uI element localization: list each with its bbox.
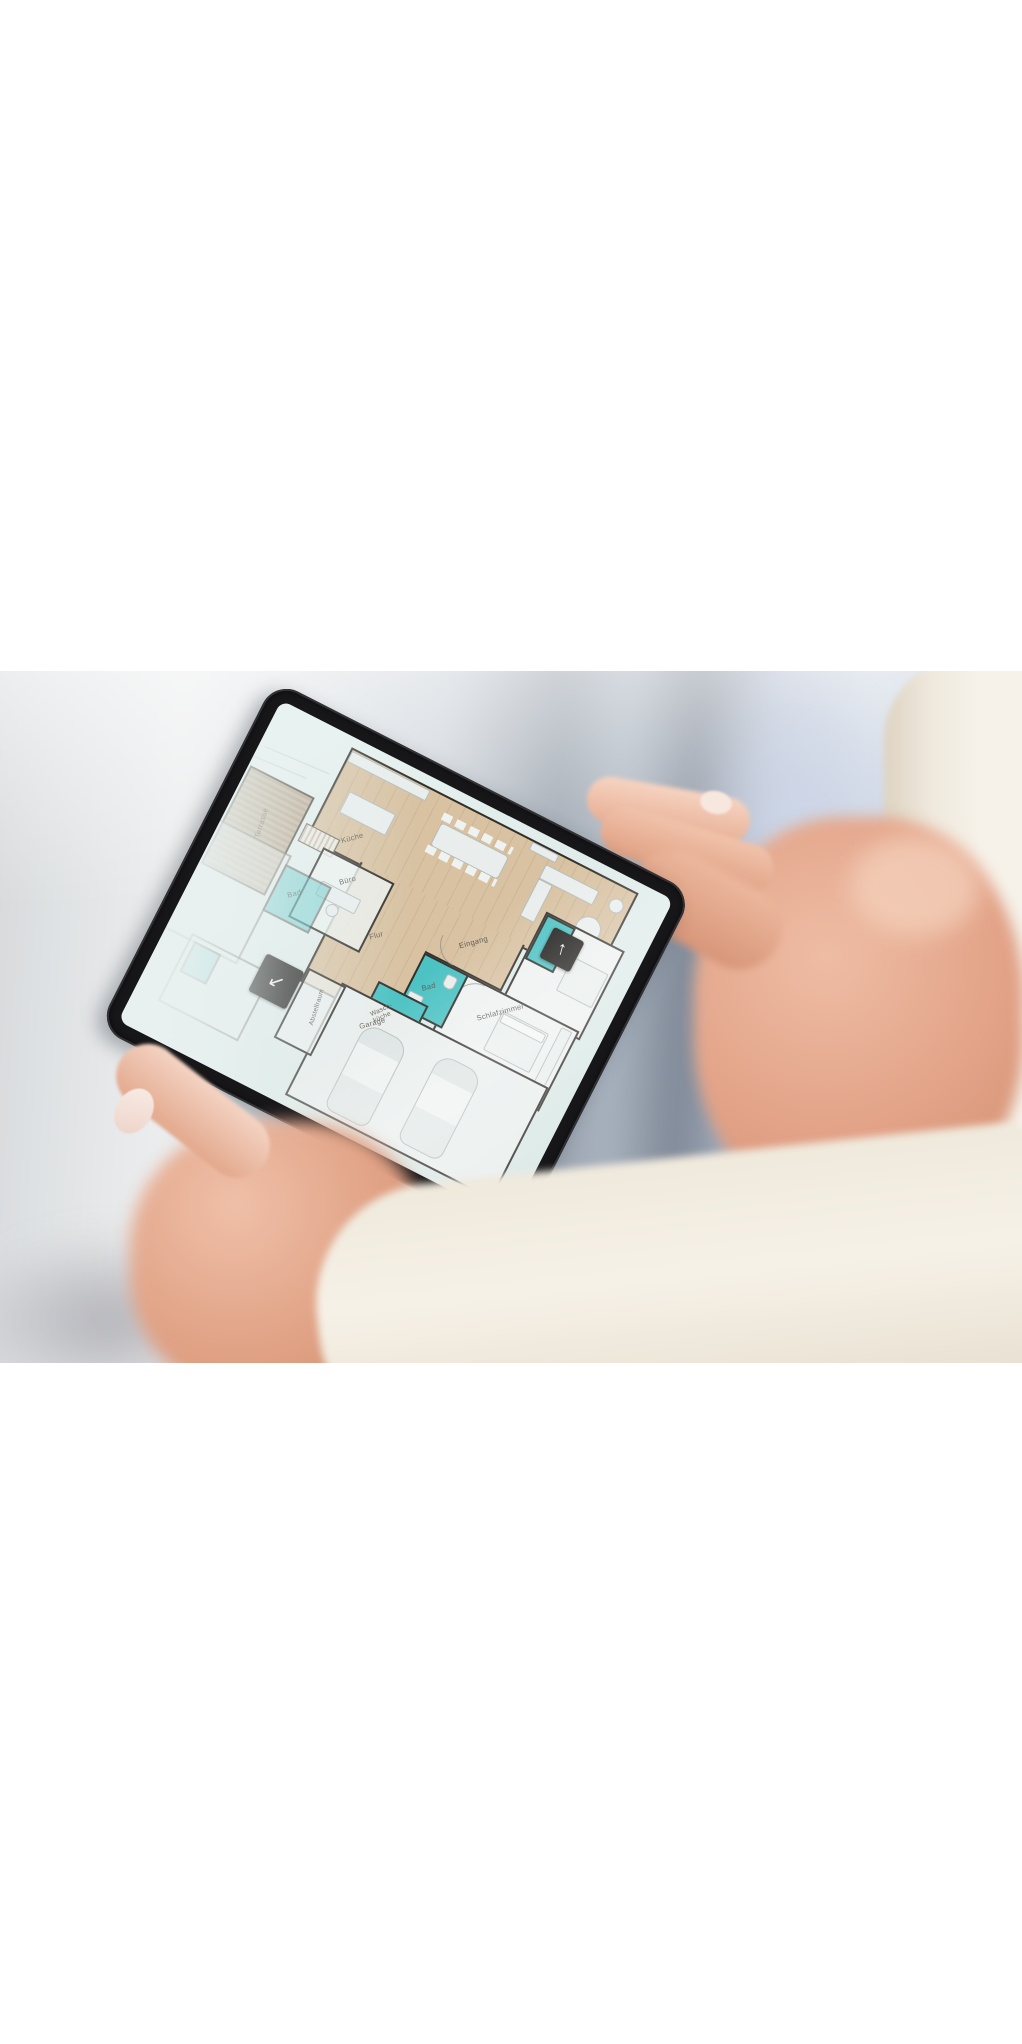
right-hand-knuckle [850, 836, 980, 936]
arrow-up-icon: ↑ [554, 938, 569, 962]
arrow-down-left-icon: ↙ [264, 968, 289, 996]
photo-hands-holding-tablet: ↑ [0, 671, 1022, 1363]
site-line [265, 746, 330, 774]
page: ↑ [0, 0, 1022, 2044]
